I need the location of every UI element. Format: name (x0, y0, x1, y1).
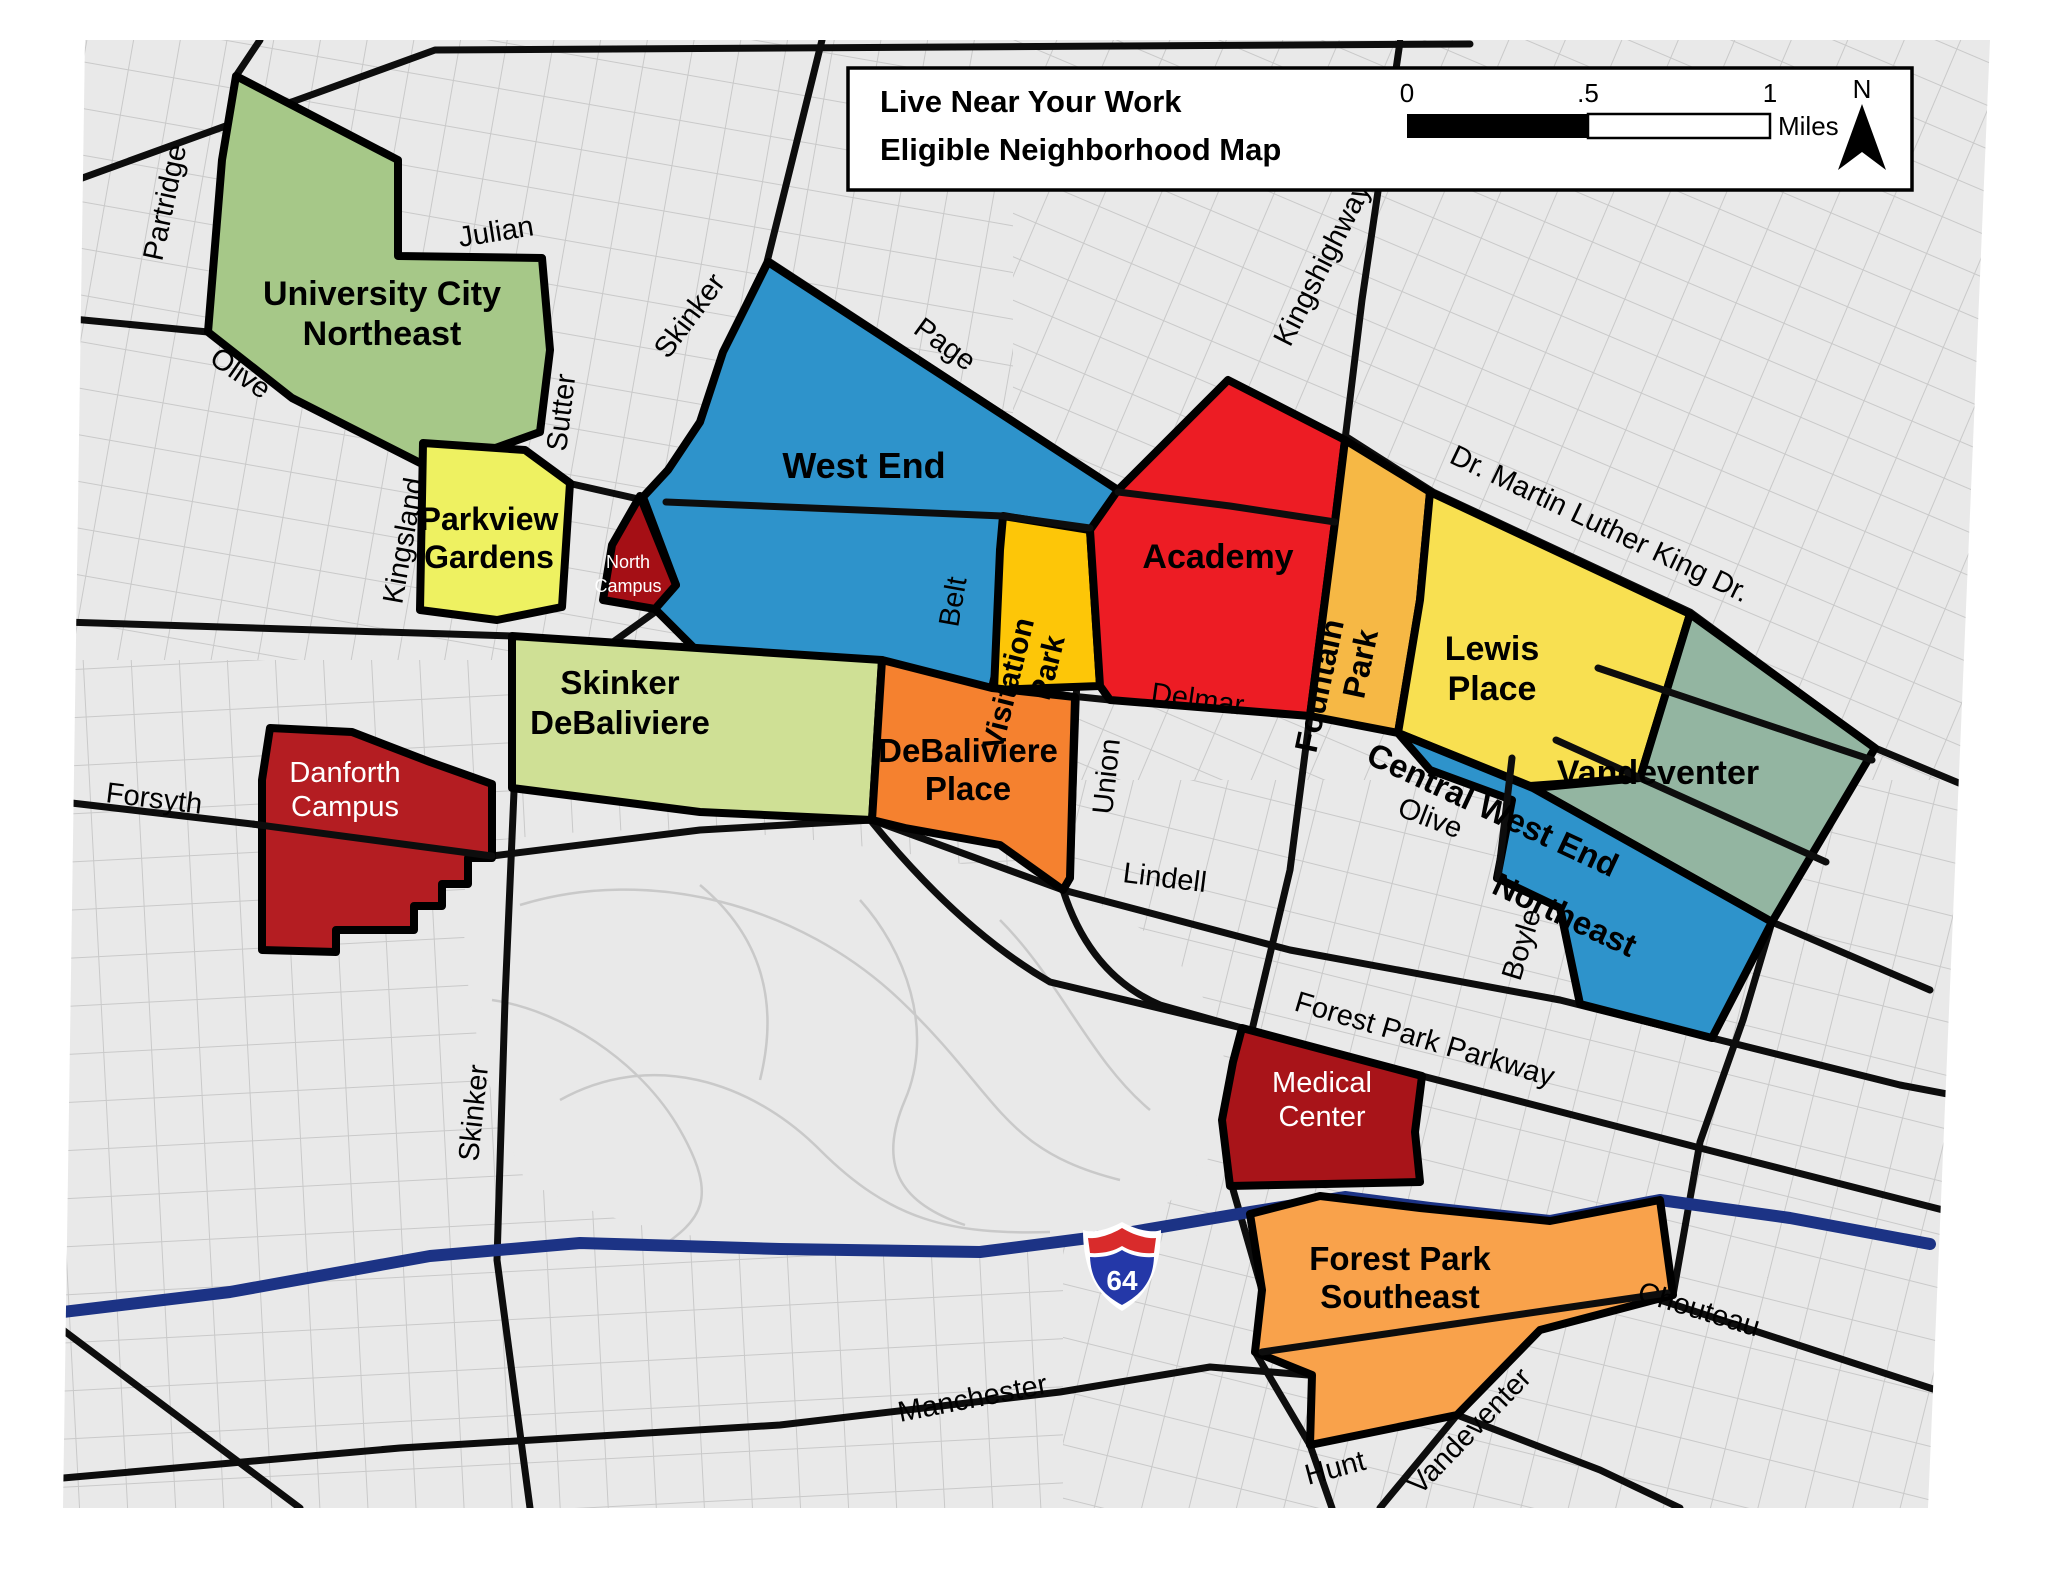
map-title-line2: Eligible Neighborhood Map (880, 132, 1281, 167)
label-medical-center-1: Medical (1272, 1067, 1372, 1099)
scale-label-end: 1 (1763, 78, 1777, 108)
label-skinker-debaliviere-1: Skinker (560, 664, 679, 701)
label-parkview-gardens-2: Gardens (424, 539, 554, 575)
label-skinker-debaliviere-2: DeBaliviere (530, 704, 710, 741)
legend-box: Live Near Your Work Eligible Neighborhoo… (848, 68, 1912, 190)
label-vandeventer: Vandeventer (1557, 754, 1759, 792)
scale-label-start: 0 (1400, 78, 1414, 108)
label-debaliviere-place-1: DeBaliviere (878, 732, 1058, 769)
scale-unit: Miles (1778, 111, 1839, 141)
label-parkview-gardens-1: Parkview (420, 501, 559, 537)
label-north-campus-1: North (606, 552, 650, 572)
label-academy: Academy (1142, 538, 1293, 576)
neighborhood-map: Partridge Olive Julian Sutter Kingsland … (0, 0, 2046, 1581)
label-debaliviere-place-2: Place (925, 770, 1011, 807)
label-north-campus-2: Campus (594, 576, 661, 596)
label-medical-center-2: Center (1278, 1101, 1365, 1133)
label-forest-park-southeast-1: Forest Park (1309, 1240, 1491, 1277)
label-forest-park-southeast-2: Southeast (1320, 1278, 1480, 1315)
scale-bar-filled (1407, 114, 1588, 138)
label-west-end: West End (782, 445, 945, 486)
map-page: Partridge Olive Julian Sutter Kingsland … (0, 0, 2046, 1581)
scale-label-mid: .5 (1577, 78, 1599, 108)
label-danforth-campus-2: Campus (291, 791, 399, 823)
scale-bar-empty (1588, 114, 1770, 138)
label-danforth-campus-1: Danforth (289, 757, 400, 789)
north-arrow-label: N (1853, 74, 1872, 104)
label-university-city-northeast-1: University City (263, 275, 501, 313)
map-title-line1: Live Near Your Work (880, 84, 1182, 119)
label-university-city-northeast-2: Northeast (303, 315, 462, 353)
label-lewis-place-2: Place (1448, 670, 1537, 708)
i64-shield-number: 64 (1106, 1265, 1138, 1296)
label-lewis-place-1: Lewis (1445, 630, 1539, 668)
